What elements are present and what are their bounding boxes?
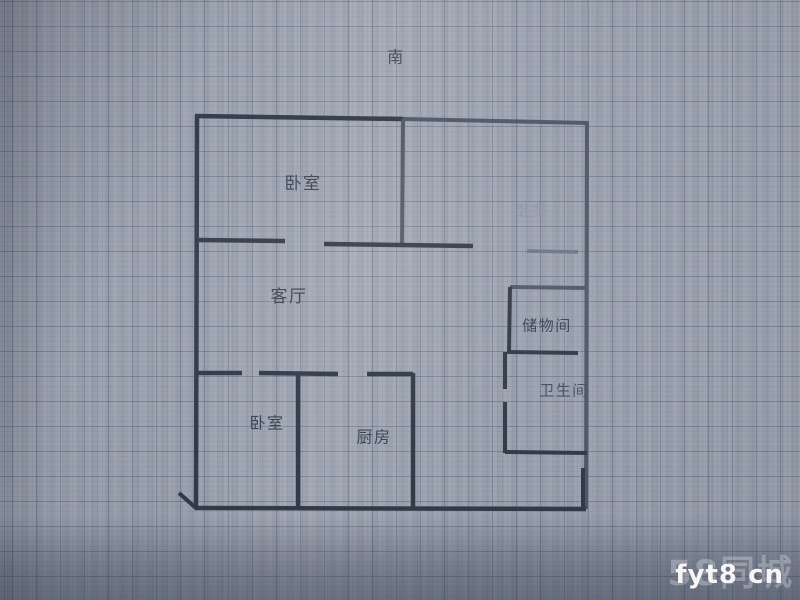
floorplan-photo: 南卧室卧室客厅储物间卫生间卧室厨房 58同城 fyt8 cn <box>0 0 800 600</box>
photo-bottom-shadow <box>0 0 800 600</box>
